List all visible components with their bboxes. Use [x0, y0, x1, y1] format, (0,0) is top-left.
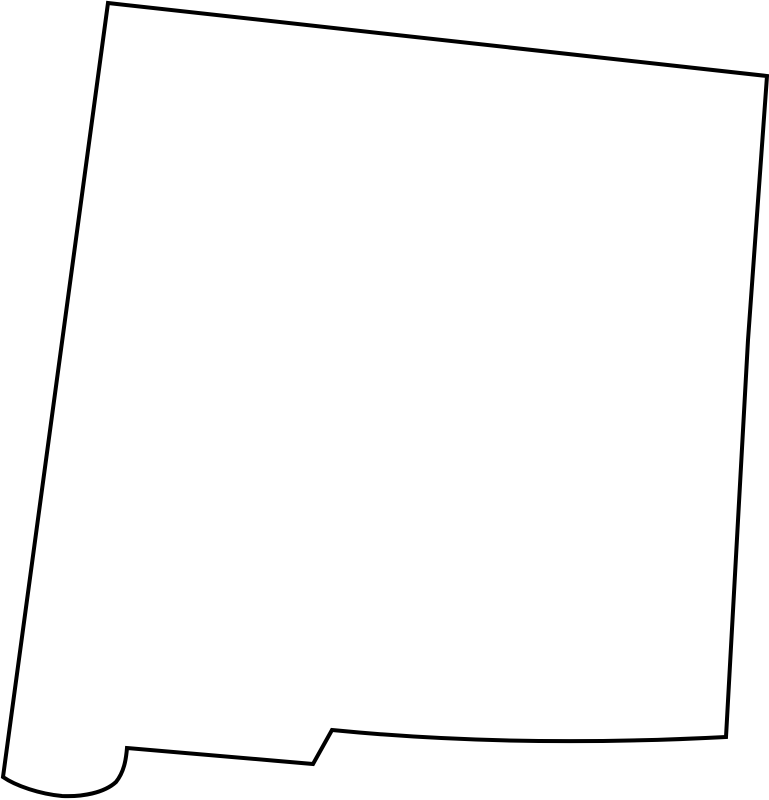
map-canvas [0, 0, 769, 800]
new-mexico-outline-map [0, 0, 769, 800]
state-border-path [3, 3, 767, 796]
